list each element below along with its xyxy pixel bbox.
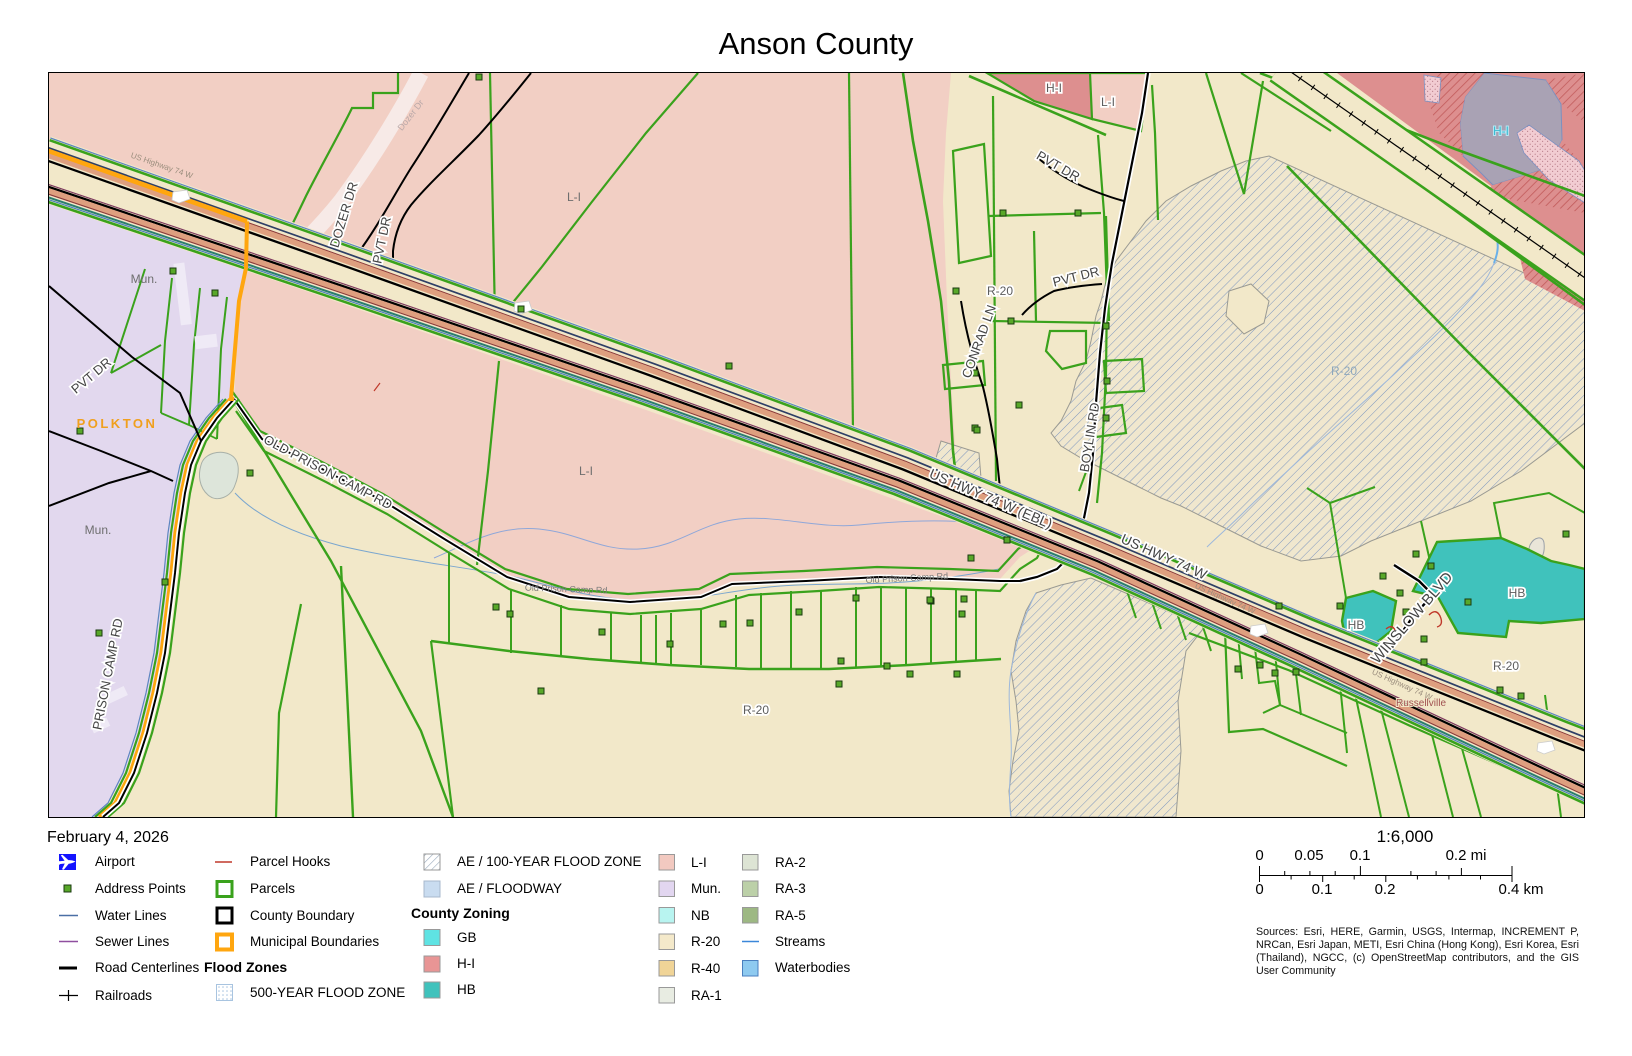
svg-text:HB: HB	[1509, 586, 1526, 600]
svg-text:L-I: L-I	[579, 464, 593, 478]
svg-text:R-20: R-20	[743, 703, 769, 717]
svg-text:Mun.: Mun.	[85, 523, 112, 537]
svg-text:R-20: R-20	[1331, 364, 1357, 378]
svg-text:HB: HB	[1348, 618, 1365, 632]
svg-text:R-20: R-20	[987, 284, 1013, 298]
svg-text:R-20: R-20	[1493, 659, 1519, 673]
svg-text:POLKTON: POLKTON	[77, 416, 158, 431]
svg-text:L-I: L-I	[1101, 95, 1115, 109]
svg-text:Russellville: Russellville	[1396, 698, 1446, 709]
svg-text:Mun.: Mun.	[131, 272, 158, 286]
svg-text:H-I: H-I	[1493, 124, 1509, 138]
svg-text:L-I: L-I	[567, 190, 581, 204]
svg-text:H-I: H-I	[1046, 81, 1062, 95]
